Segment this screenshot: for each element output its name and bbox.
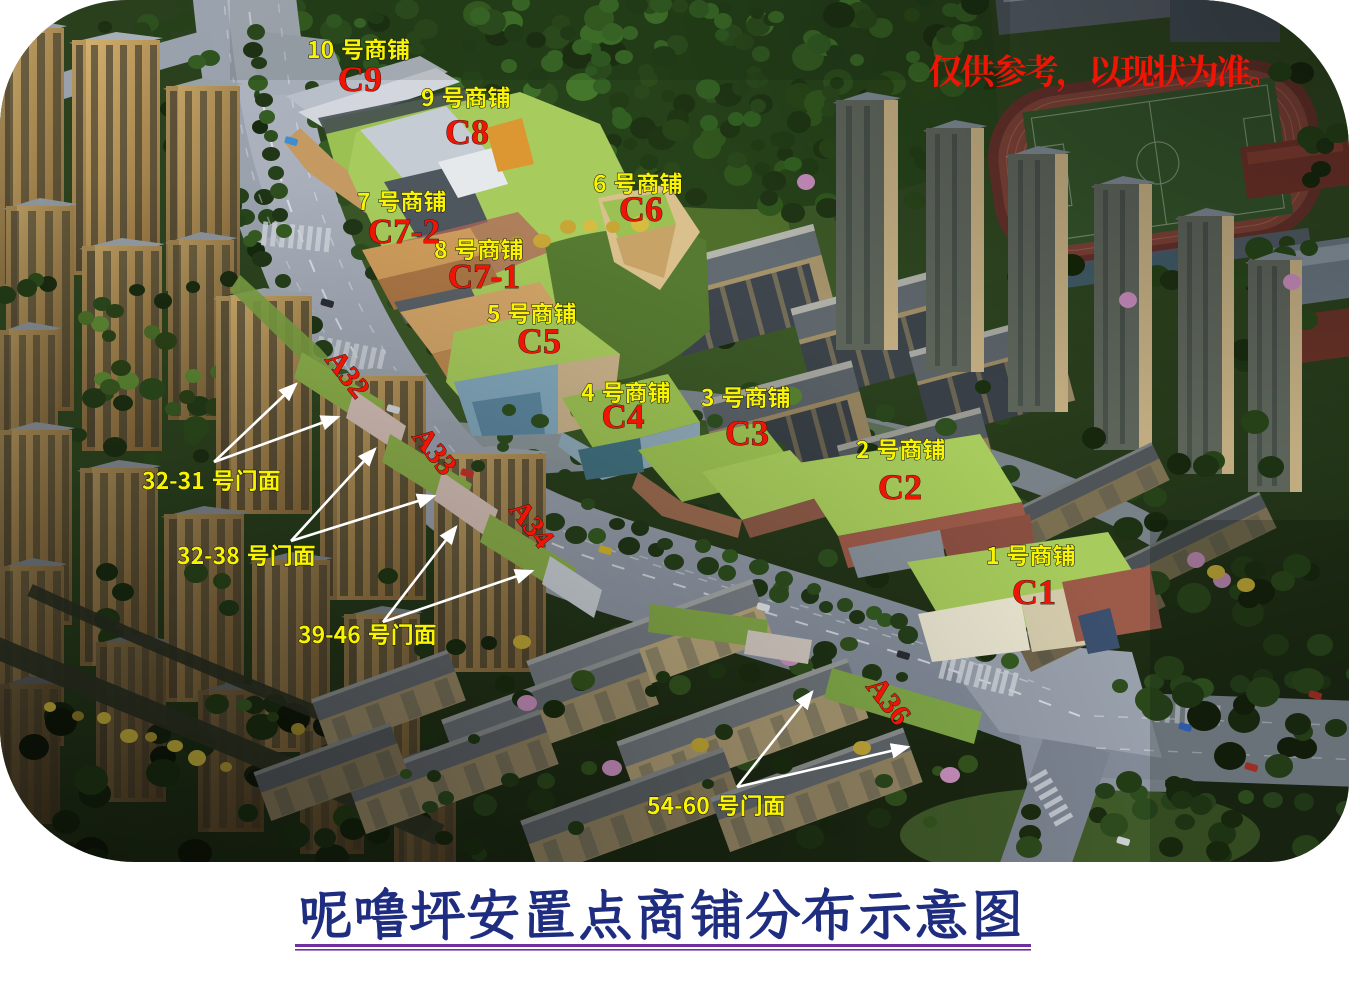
svg-text:C7-1: C7-1 (448, 257, 520, 296)
svg-text:C2: C2 (878, 467, 922, 507)
svg-text:C8: C8 (445, 112, 489, 152)
svg-text:C4: C4 (602, 397, 645, 436)
svg-text:C5: C5 (517, 321, 561, 361)
svg-text:C9: C9 (338, 59, 382, 99)
svg-text:C6: C6 (619, 189, 663, 229)
svg-text:C7-2: C7-2 (368, 212, 440, 251)
svg-text:C1: C1 (1012, 572, 1056, 612)
svg-text:C3: C3 (725, 413, 769, 453)
